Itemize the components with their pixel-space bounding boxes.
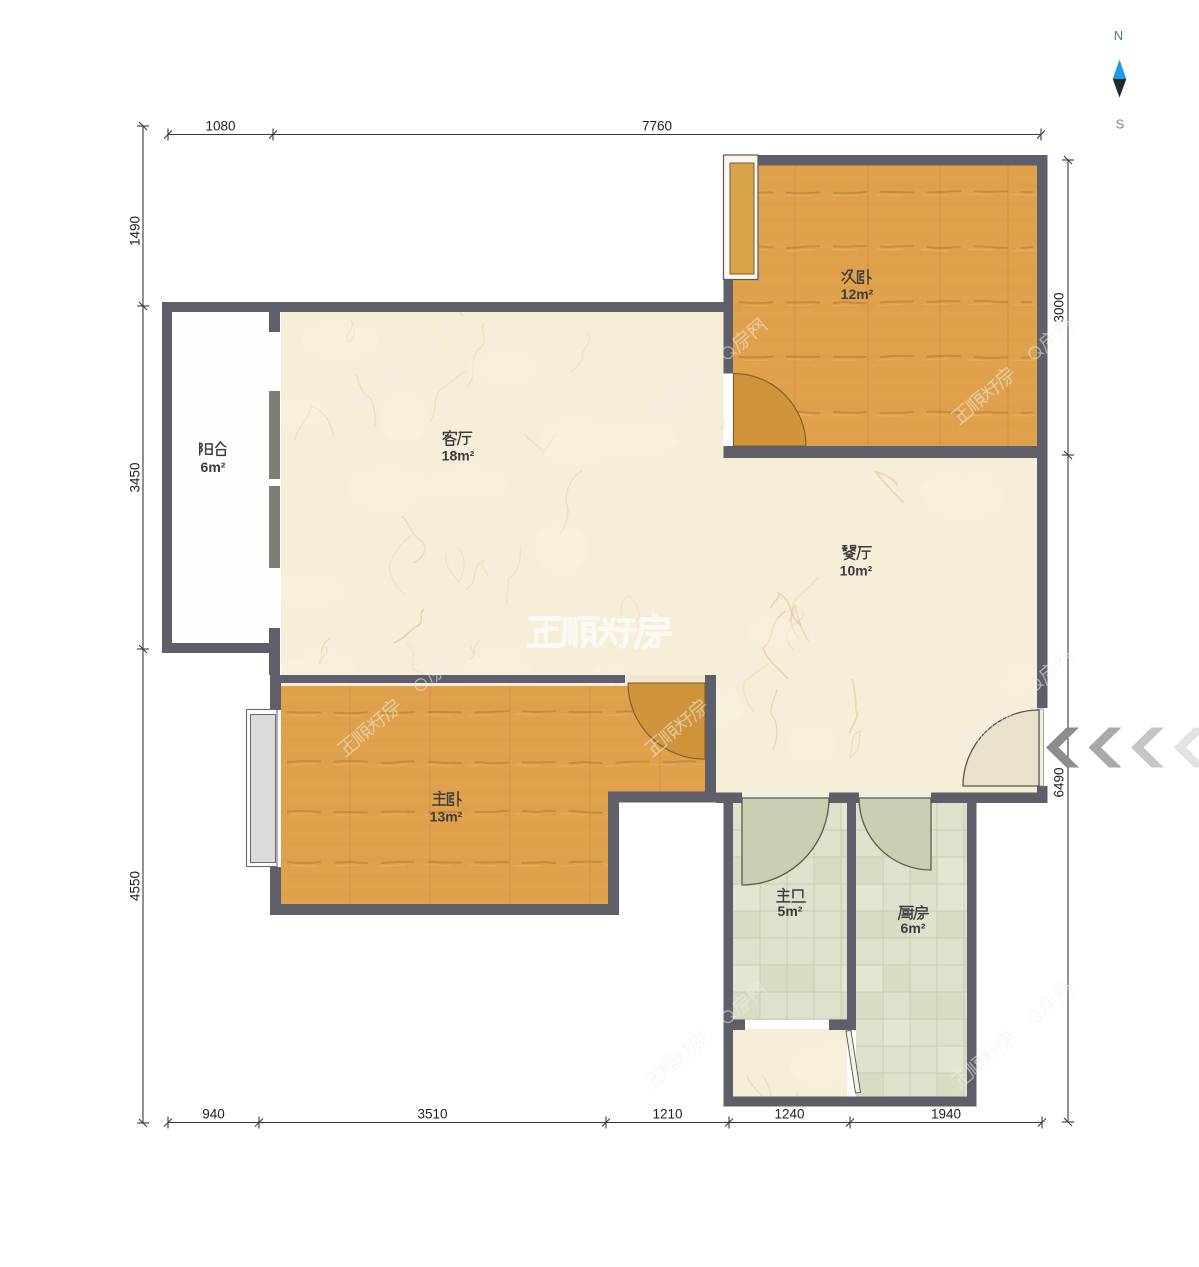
- svg-text:5m²: 5m²: [778, 903, 803, 919]
- svg-text:1940: 1940: [931, 1107, 961, 1122]
- svg-text:4550: 4550: [128, 871, 143, 901]
- svg-text:1080: 1080: [205, 119, 235, 134]
- svg-text:940: 940: [202, 1107, 225, 1122]
- svg-text:13m²: 13m²: [430, 809, 463, 825]
- svg-text:3450: 3450: [128, 462, 143, 492]
- svg-text:1240: 1240: [774, 1107, 804, 1122]
- svg-text:12m²: 12m²: [841, 286, 874, 302]
- svg-text:N: N: [1114, 28, 1123, 43]
- svg-text:6490: 6490: [1052, 767, 1067, 797]
- svg-text:18m²: 18m²: [442, 448, 475, 464]
- svg-text:10m²: 10m²: [840, 563, 873, 579]
- svg-text:1210: 1210: [652, 1107, 682, 1122]
- svg-text:6m²: 6m²: [201, 459, 226, 475]
- svg-text:6m²: 6m²: [901, 920, 926, 936]
- svg-text:7760: 7760: [642, 119, 672, 134]
- svg-text:1490: 1490: [128, 216, 143, 246]
- svg-text:S: S: [1116, 117, 1125, 132]
- svg-text:3510: 3510: [417, 1107, 447, 1122]
